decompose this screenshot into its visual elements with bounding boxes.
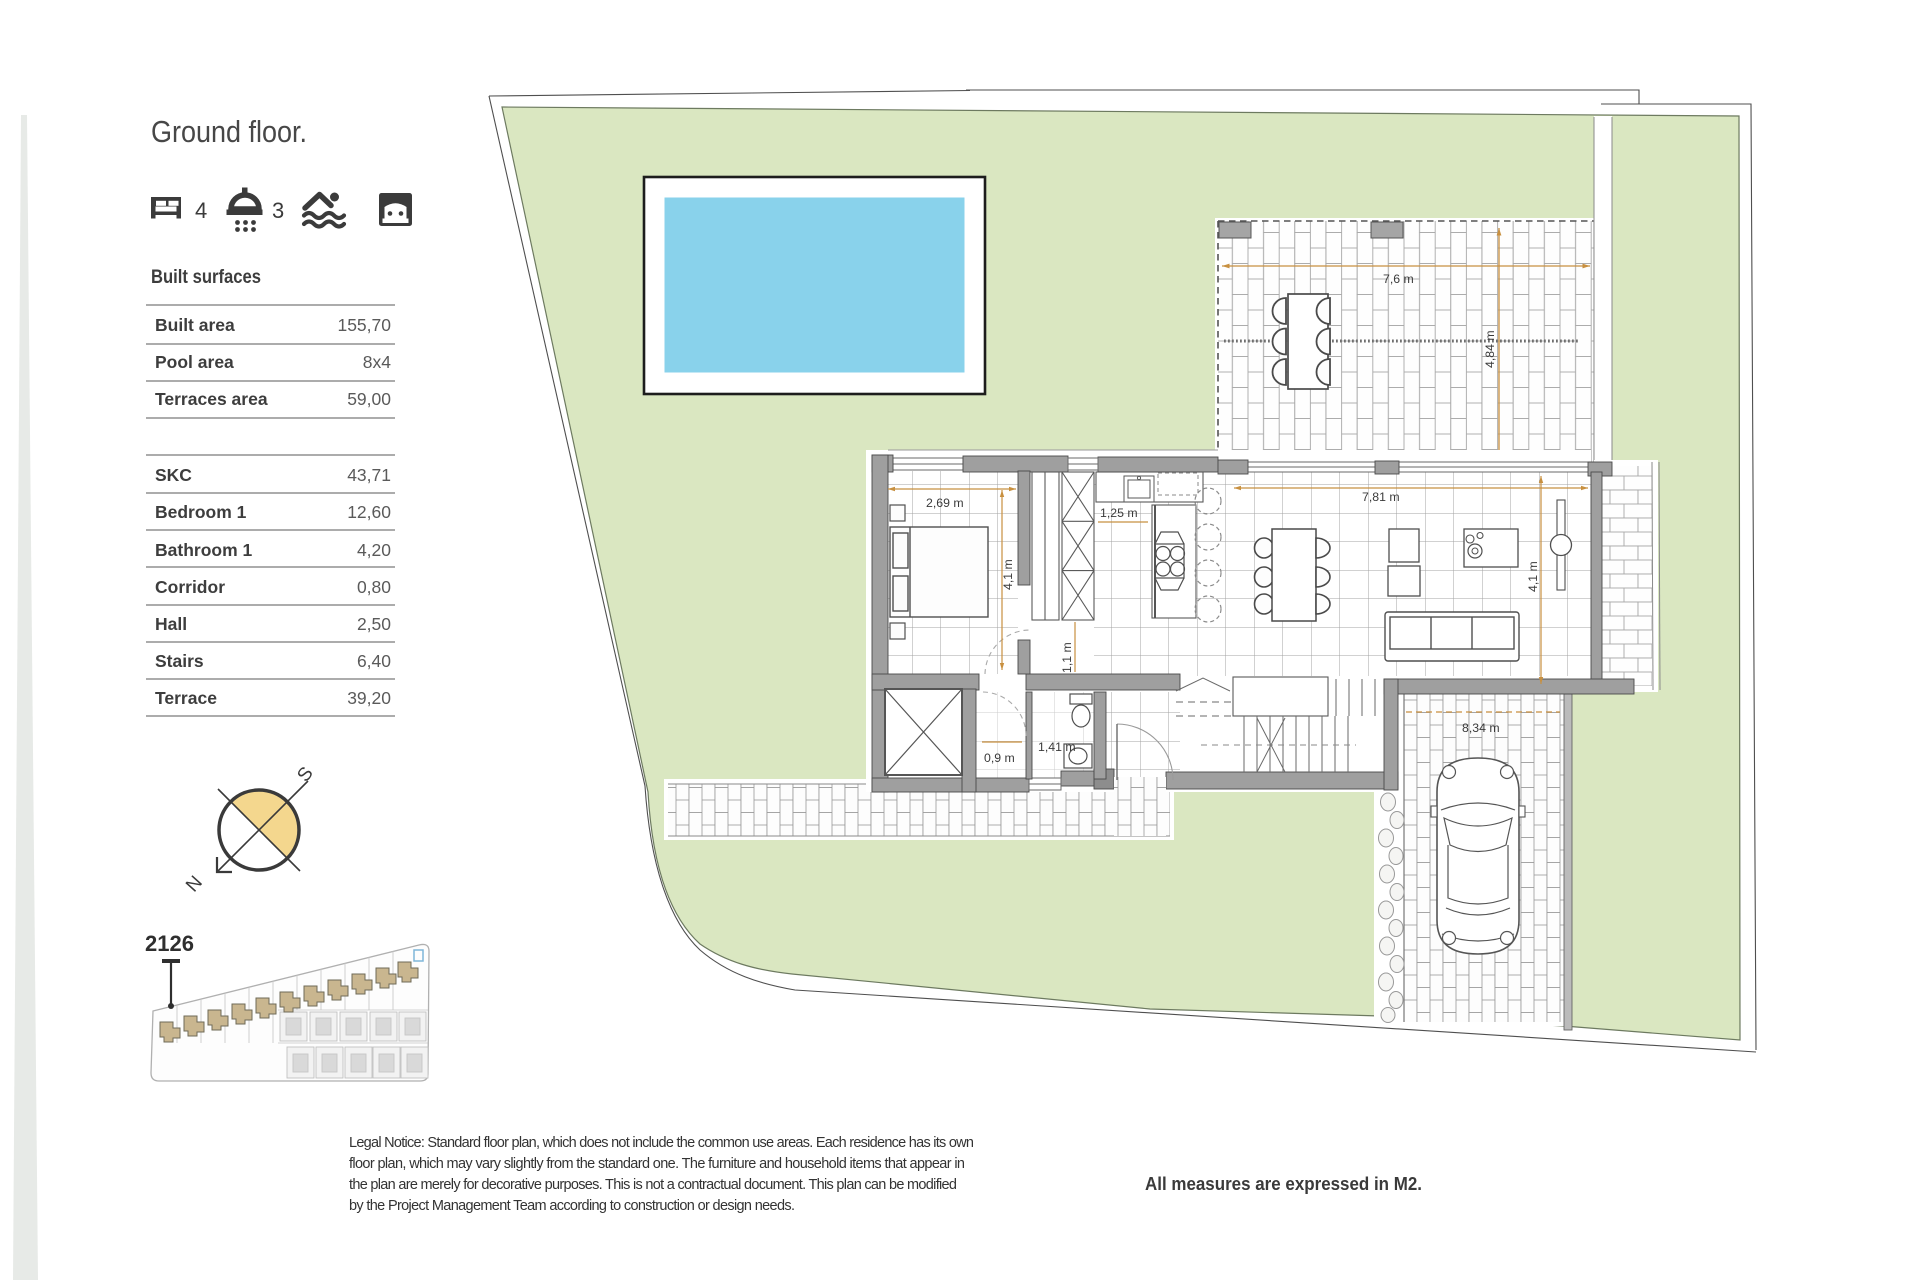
svg-text:4,1 m: 4,1 m — [1001, 559, 1015, 590]
svg-text:155,70: 155,70 — [337, 315, 391, 335]
svg-text:7,6 m: 7,6 m — [1383, 272, 1414, 286]
svg-text:1,1 m: 1,1 m — [1060, 642, 1074, 673]
svg-text:12,60: 12,60 — [347, 502, 391, 522]
svg-text:Ground floor.: Ground floor. — [151, 114, 307, 149]
svg-text:Pool area: Pool area — [155, 352, 234, 372]
svg-text:Bathroom 1: Bathroom 1 — [155, 540, 253, 560]
svg-text:4,1 m: 4,1 m — [1526, 561, 1540, 592]
svg-text:4,84 m: 4,84 m — [1483, 330, 1497, 368]
svg-text:7,81 m: 7,81 m — [1362, 490, 1400, 504]
svg-text:floor plan, which may vary sli: floor plan, which may vary slightly from… — [349, 1156, 965, 1172]
svg-text:59,00: 59,00 — [347, 389, 391, 409]
svg-text:Corridor: Corridor — [155, 577, 225, 597]
svg-text:8,34 m: 8,34 m — [1462, 721, 1500, 735]
svg-text:Stairs: Stairs — [155, 651, 204, 671]
svg-text:43,71: 43,71 — [347, 465, 391, 485]
svg-text:by the Project Management Team: by the Project Management Team according… — [349, 1198, 795, 1214]
svg-text:6,40: 6,40 — [357, 651, 391, 671]
svg-text:Hall: Hall — [155, 614, 187, 634]
svg-text:Bedroom 1: Bedroom 1 — [155, 502, 247, 522]
svg-text:All measures are expressed in: All measures are expressed in M2. — [1145, 1173, 1422, 1194]
svg-text:Terraces area: Terraces area — [155, 389, 268, 409]
svg-text:the plan are merely for decora: the plan are merely for decorative purpo… — [349, 1177, 957, 1193]
svg-text:0,80: 0,80 — [357, 577, 391, 597]
svg-text:1,41 m: 1,41 m — [1038, 740, 1076, 754]
svg-text:4: 4 — [195, 198, 207, 223]
svg-text:2126: 2126 — [145, 931, 194, 956]
svg-text:8x4: 8x4 — [363, 352, 391, 372]
svg-text:Built surfaces: Built surfaces — [151, 267, 261, 288]
svg-text:SKC: SKC — [155, 465, 192, 485]
svg-text:1,25 m: 1,25 m — [1100, 506, 1138, 520]
svg-text:Terrace: Terrace — [155, 688, 217, 708]
svg-text:Built area: Built area — [155, 315, 235, 335]
svg-text:4,20: 4,20 — [357, 540, 391, 560]
svg-text:3: 3 — [272, 198, 284, 223]
svg-text:2,69 m: 2,69 m — [926, 496, 964, 510]
svg-text:Legal Notice: Standard floor p: Legal Notice: Standard floor plan, which… — [349, 1135, 974, 1151]
svg-text:39,20: 39,20 — [347, 688, 391, 708]
svg-text:0,9 m: 0,9 m — [984, 751, 1015, 765]
svg-text:2,50: 2,50 — [357, 614, 391, 634]
